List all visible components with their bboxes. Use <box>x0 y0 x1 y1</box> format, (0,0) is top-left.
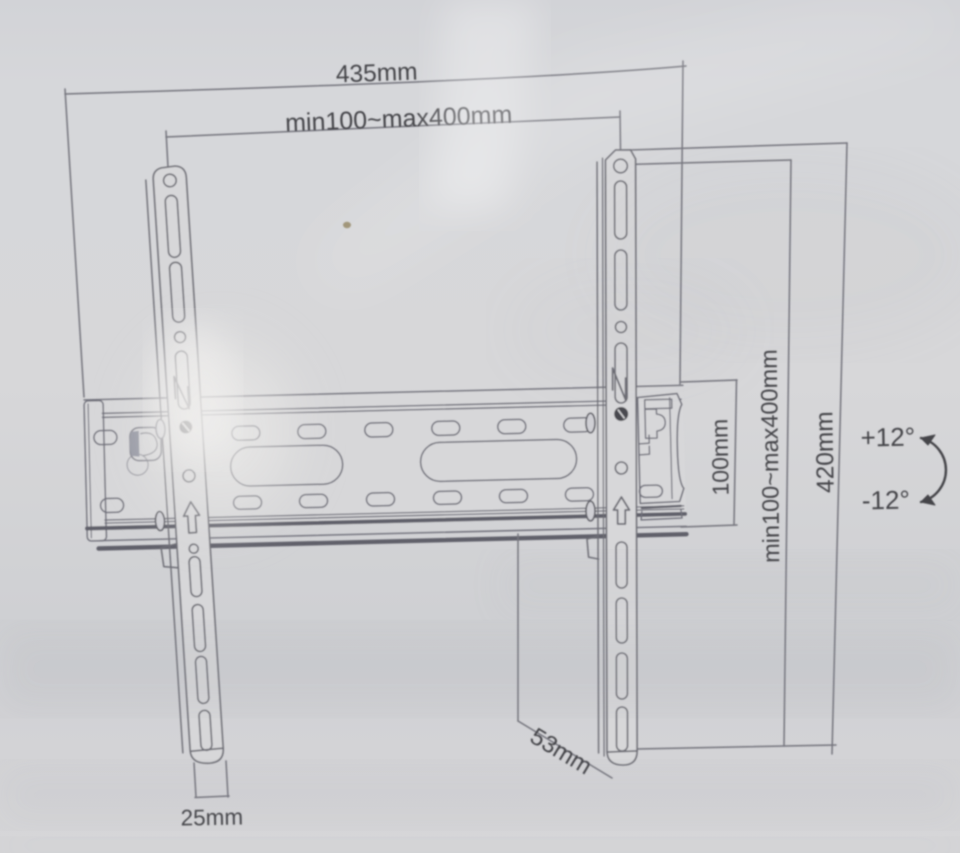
svg-text:+12°: +12° <box>860 422 915 453</box>
svg-text:420mm: 420mm <box>811 411 839 493</box>
svg-text:min100~max400mm: min100~max400mm <box>756 349 785 563</box>
svg-text:-12°: -12° <box>862 485 911 516</box>
svg-text:435mm: 435mm <box>335 59 418 89</box>
svg-text:100mm: 100mm <box>706 419 733 496</box>
